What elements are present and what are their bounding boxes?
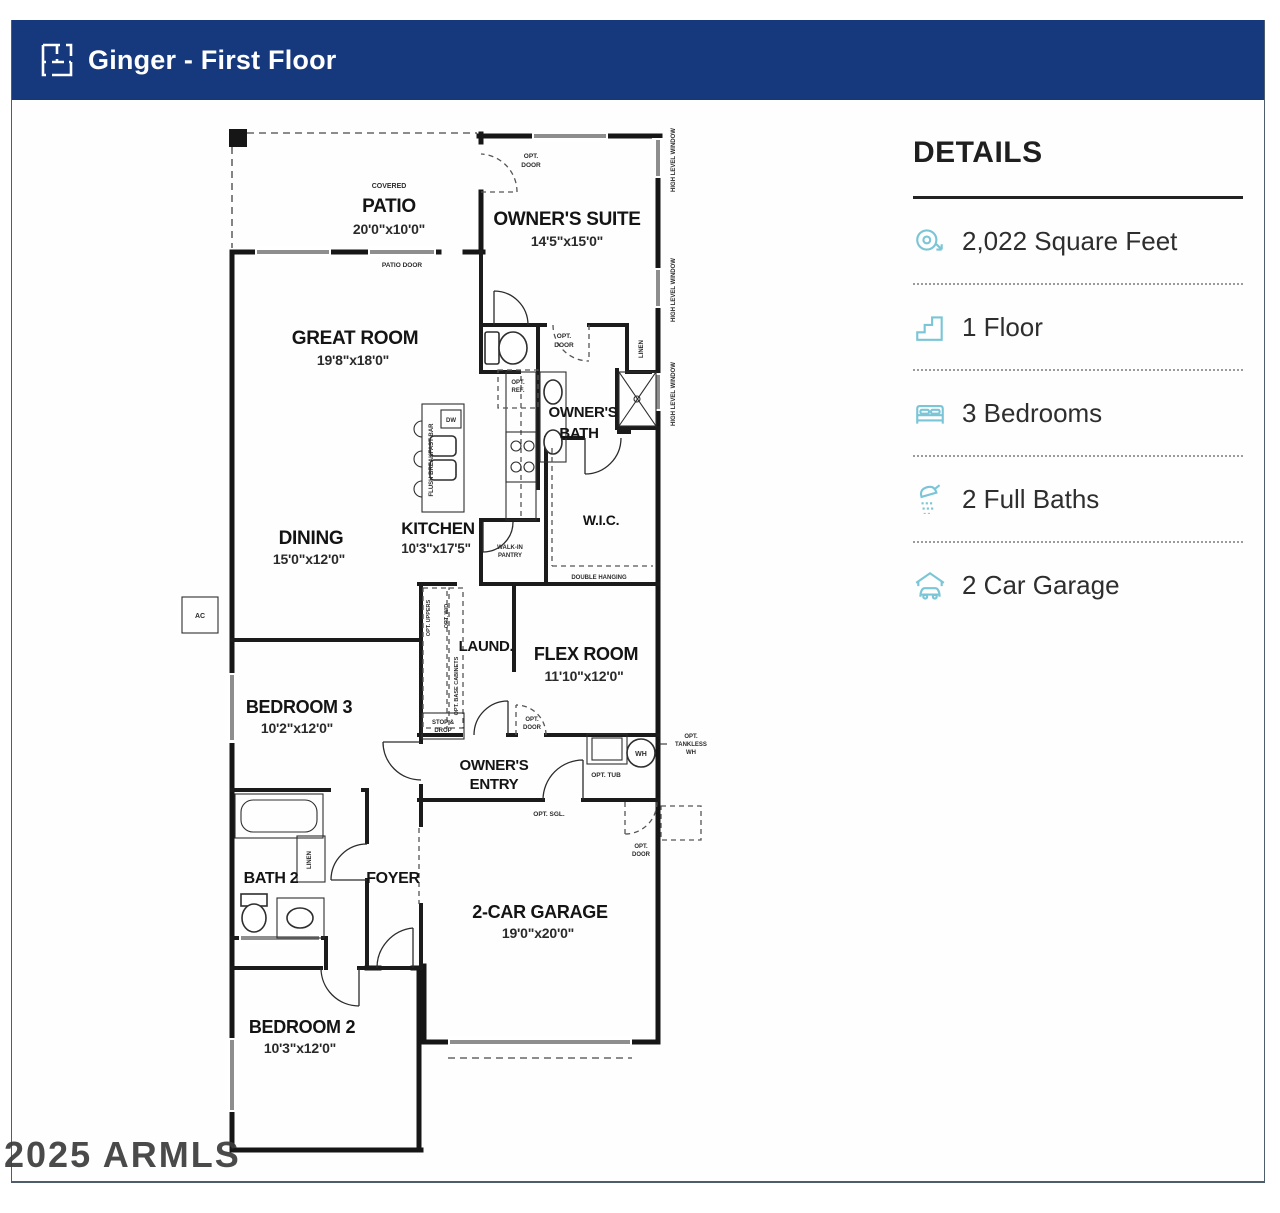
ac-note: AC — [195, 613, 205, 620]
armls-watermark: 2025 ARMLS — [4, 1134, 241, 1176]
high-level-window-note-2: HIGH LEVEL WINDOW — [671, 258, 677, 322]
opt-door-note-2a: OPT. — [557, 333, 572, 340]
floorplan-icon — [40, 42, 74, 78]
laundry-label: LAUND. — [459, 638, 514, 655]
foyer-label: FOYER — [366, 870, 420, 887]
opt-door-note-4b: DOOR — [632, 852, 651, 858]
owners-suite-label: OWNER'S SUITE — [493, 209, 640, 230]
shower-icon — [913, 482, 947, 516]
tankless-note-c: WH — [686, 750, 696, 756]
bedroom2-dims: 10'3"x12'0" — [264, 1040, 336, 1056]
baths-value: 2 Full Baths — [962, 484, 1099, 515]
floorplan-drawing: COVERED PATIO 20'0"x10'0" OWNER'S SUITE … — [169, 115, 769, 1165]
toilet2-bowl — [242, 904, 266, 932]
patio-dims: 20'0"x10'0" — [353, 221, 425, 237]
tape-measure-icon — [913, 224, 947, 258]
opt-uppers-note: OPT. UPPERS — [426, 599, 432, 636]
floors-value: 1 Floor — [962, 312, 1043, 343]
flex-room-dims: 11'10"x12'0" — [544, 668, 623, 684]
bathtub-inner — [241, 800, 317, 832]
detail-row-bedrooms: 3 Bedrooms — [913, 369, 1243, 455]
detail-row-garage: 2 Car Garage — [913, 541, 1243, 627]
tankless-note-a: OPT. — [684, 734, 698, 740]
bedrooms-value: 3 Bedrooms — [962, 398, 1102, 429]
kitchen-dims: 10'3"x17'5" — [401, 541, 471, 556]
dishwasher-note: DW — [446, 418, 456, 424]
opt-ref-note-b: REF. — [511, 388, 524, 394]
linen-note-2: LINEN — [307, 851, 313, 869]
patio-label: PATIO — [362, 196, 416, 217]
patio-sub-label: COVERED — [372, 183, 407, 190]
great-room-dims: 19'8"x18'0" — [317, 352, 389, 368]
high-level-window-note-1: HIGH LEVEL WINDOW — [671, 128, 677, 192]
tankless-note-b: TANKLESS — [675, 742, 707, 748]
detail-row-baths: 2 Full Baths — [913, 455, 1243, 541]
opt-door-note-4a: OPT. — [634, 844, 648, 850]
bed-icon — [913, 396, 947, 430]
header-bar: Ginger - First Floor — [12, 20, 1264, 100]
walk-in-pantry-note-b: PANTRY — [498, 553, 522, 559]
great-room-label: GREAT ROOM — [292, 328, 418, 349]
stop-drop-note-a: STOP & — [432, 720, 455, 726]
bedroom2-label: BEDROOM 2 — [249, 1017, 356, 1037]
flush-breakfast-bar-note: FLUSH BREAKFAST BAR — [429, 423, 435, 497]
opt-ref-note-a: OPT. — [511, 380, 525, 386]
flex-room-label: FLEX ROOM — [534, 644, 638, 664]
owners-entry-label-2: ENTRY — [470, 776, 519, 793]
page-title: Ginger - First Floor — [88, 45, 337, 76]
owners-bath-label-1: OWNER'S — [549, 404, 618, 421]
high-level-window-note-3: HIGH LEVEL WINDOW — [671, 362, 677, 426]
details-panel: DETAILS 2,022 Square Feet 1 Floor — [913, 136, 1243, 627]
bedroom3-label: BEDROOM 3 — [246, 697, 353, 717]
sink3 — [287, 908, 313, 928]
wh-note: WH — [635, 751, 647, 758]
dining-dims: 15'0"x12'0" — [273, 551, 345, 567]
opt-tub-note: OPT. TUB — [591, 772, 621, 779]
owners-suite-dims: 14'5"x15'0" — [531, 233, 603, 249]
detail-row-floors: 1 Floor — [913, 283, 1243, 369]
opt-door-note-1a: OPT. — [524, 153, 539, 160]
laundry-tub-inner — [592, 738, 622, 760]
patio-post — [229, 129, 247, 147]
opt-door-note-2b: DOOR — [554, 342, 574, 349]
walk-in-pantry-note-a: WALK-IN — [497, 545, 523, 551]
sqft-value: 2,022 Square Feet — [962, 226, 1177, 257]
toilet-bowl — [499, 332, 527, 364]
fixtures — [182, 332, 667, 938]
owners-bath-label-2: BATH — [559, 425, 598, 442]
car-garage-icon — [913, 568, 947, 602]
stop-drop-note-b: DROP — [434, 728, 451, 734]
page: { "header": { "title": "Ginger - First F… — [0, 0, 1280, 1213]
bedroom3-dims: 10'2"x12'0" — [261, 720, 333, 736]
opt-wd-note: OPT. W/D — [444, 604, 450, 628]
stairs-icon — [913, 310, 947, 344]
detail-row-sqft: 2,022 Square Feet — [913, 199, 1243, 283]
bar-stools — [414, 421, 422, 497]
wic-hanging-rails — [552, 448, 653, 566]
toilet-tank — [485, 332, 499, 364]
details-title: DETAILS — [913, 136, 1243, 170]
sink-1 — [544, 380, 562, 404]
opt-door-note-1b: DOOR — [521, 162, 541, 169]
dining-label: DINING — [279, 528, 344, 549]
garage-dims: 19'0"x20'0" — [502, 925, 574, 941]
garage-value: 2 Car Garage — [962, 570, 1120, 601]
double-hanging-note: DOUBLE HANGING — [571, 575, 627, 581]
linen-note-1: LINEN — [639, 340, 645, 358]
opt-sgl-note: OPT. SGL. — [533, 811, 565, 818]
opt-door-note-3b: DOOR — [523, 725, 542, 731]
wic-label: W.I.C. — [583, 512, 619, 528]
opt-base-cabinets-note: OPT. BASE CABINETS — [454, 656, 460, 715]
opt-door-note-3a: OPT. — [525, 717, 539, 723]
garage-label: 2-CAR GARAGE — [472, 902, 608, 922]
patio-door-note: PATIO DOOR — [382, 262, 423, 269]
owners-entry-label-1: OWNER'S — [460, 757, 529, 774]
kitchen-label: KITCHEN — [401, 519, 474, 538]
bath2-label: BATH 2 — [244, 870, 299, 887]
shower — [619, 372, 656, 426]
